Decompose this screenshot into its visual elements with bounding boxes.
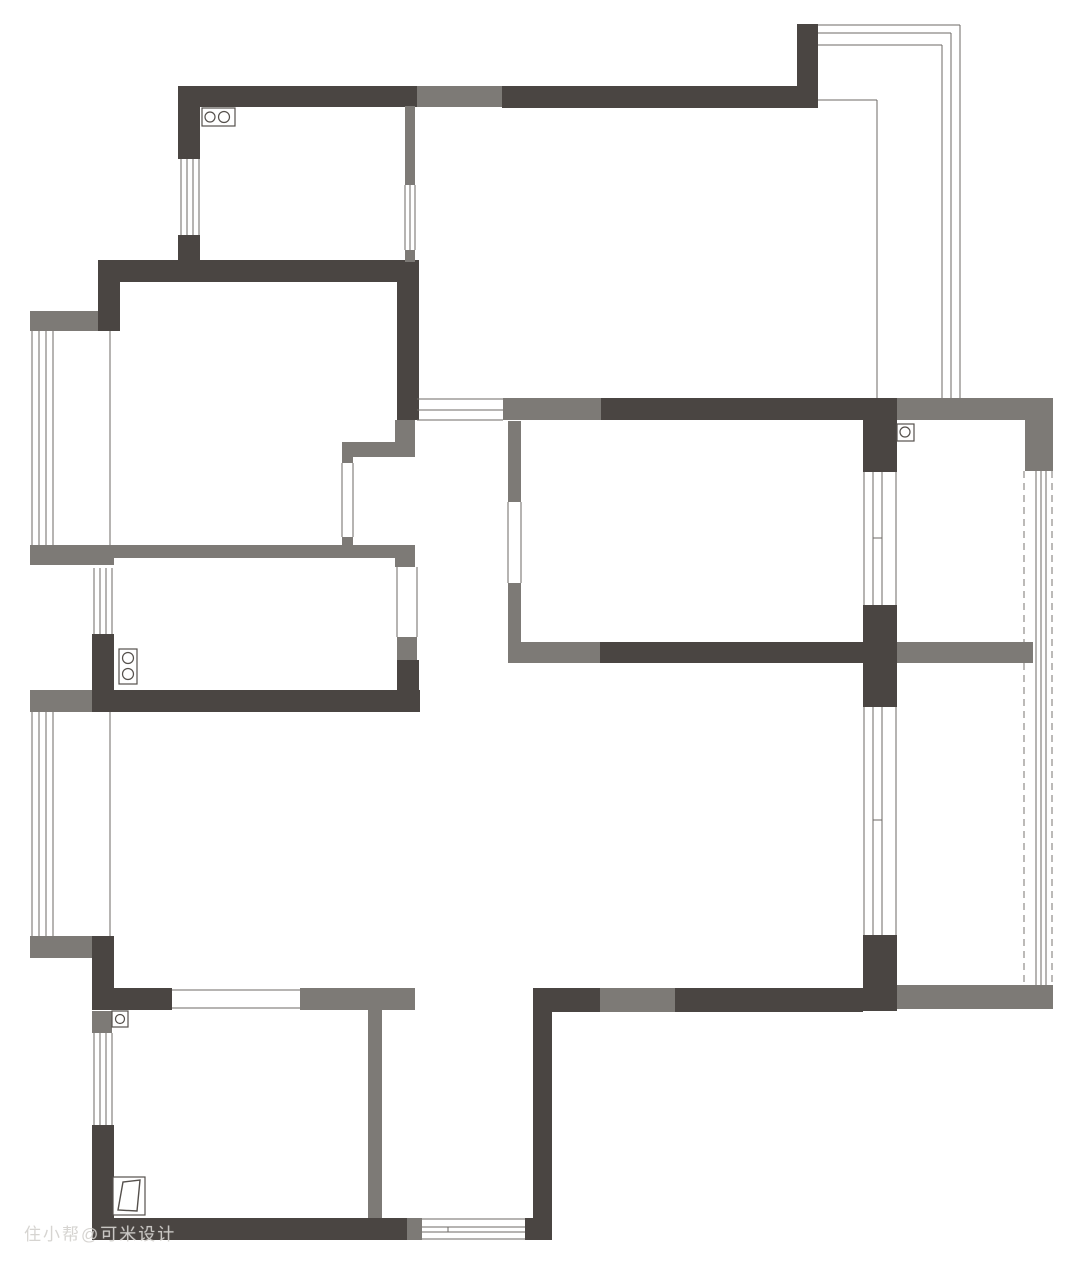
dining-top-wall-dark	[601, 398, 863, 420]
bottom-room-right-wall	[533, 988, 552, 1240]
top-wall-gray-segment	[417, 86, 502, 107]
right-column-middle	[863, 605, 897, 707]
kitchen-left-wall-upper	[178, 86, 200, 159]
bedroom1-right-wall	[368, 1010, 382, 1218]
water-heater-circle	[900, 427, 910, 437]
washer-circle-2	[123, 669, 134, 680]
living-bottom-wall-2	[600, 988, 675, 1012]
bay2-top-stub	[30, 690, 92, 712]
bath-top-wall	[114, 545, 415, 558]
living-bottom-wall-1	[533, 988, 600, 1012]
bay1-top-stub	[30, 311, 98, 331]
left-lower-corner-wall	[92, 936, 114, 1010]
bedroom2-bottom-wall	[897, 642, 1033, 663]
kitchen-partition-stub	[405, 250, 415, 262]
dining-bottom-wall-dark	[600, 642, 863, 663]
top-wall-right	[502, 86, 818, 108]
stove-burner-2	[219, 112, 230, 123]
bedroom2-top-wall	[897, 398, 1025, 420]
glass-lines-under-layer	[1024, 471, 1052, 985]
bay1-bottom-stub	[30, 545, 114, 565]
bedroom1-top-wall-right	[300, 988, 415, 1010]
kitchen-partition-upper	[405, 106, 415, 185]
floor-plan-drawing	[0, 0, 1080, 1270]
living-bottom-wall-3	[675, 988, 863, 1012]
bath-left-wall-lower	[92, 634, 114, 692]
floor-plan-stage: 住小帮@可米设计	[0, 0, 1080, 1270]
bottom-window-jamb	[407, 1218, 422, 1240]
dining-left-wall-upper	[508, 421, 521, 502]
left-upper-corner-wall	[98, 260, 120, 331]
kitchen-top-wall	[178, 86, 417, 107]
bedroom1-top-wall-left	[114, 988, 172, 1010]
shaft-left-stub-top	[342, 442, 353, 463]
dining-top-wall-gray	[503, 398, 601, 420]
bay2-bottom-stub	[30, 936, 92, 958]
window-lines-layer	[32, 25, 960, 1239]
washer-circle-1	[123, 653, 134, 664]
floor-drain-circle	[116, 1015, 125, 1024]
living-bottom-wall-4	[895, 985, 1053, 1009]
dining-bottom-wall-gray	[521, 642, 600, 663]
walls-layer	[30, 24, 1053, 1240]
kitchen-right-wall	[397, 262, 419, 420]
right-column-lower	[863, 935, 897, 1011]
bath-door-jamb-bottom	[397, 637, 417, 660]
balcony-stub	[797, 24, 818, 86]
bath-bottom-wall	[92, 690, 420, 712]
watermark-text: 住小帮@可米设计	[24, 1220, 176, 1245]
bath-door-jamb-top	[395, 545, 415, 567]
stove-burner-1	[205, 112, 215, 122]
dining-left-wall-lower	[508, 583, 521, 663]
bedroom2-right-corner	[1025, 398, 1053, 471]
kitchen-bottom-wall	[98, 260, 419, 282]
bedroom1-left-stub	[92, 1011, 112, 1033]
right-column-upper	[863, 398, 897, 472]
kitchen-left-wall-lower	[178, 235, 200, 262]
